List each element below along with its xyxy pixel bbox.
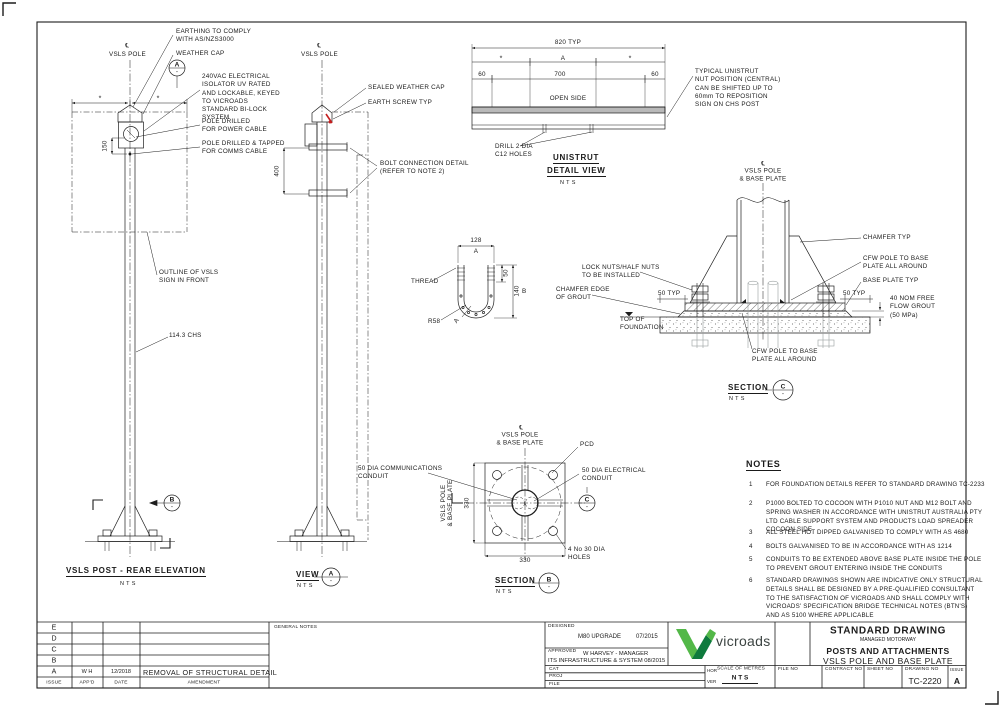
secb-centerline-symbol: ℄ bbox=[519, 425, 523, 432]
dim-150: 150 bbox=[102, 140, 109, 151]
designed-value: M80 UPGRADE bbox=[578, 634, 621, 640]
note-3-number: 3 bbox=[749, 529, 753, 538]
dim-140: 140 bbox=[514, 285, 521, 296]
rear-dim-star-right: * bbox=[157, 96, 160, 103]
note-4-number: 4 bbox=[749, 543, 753, 552]
scale-value: N T S bbox=[732, 675, 749, 682]
lock-nuts-label: LOCK NUTS/HALF NUTS TO BE INSTALLED bbox=[582, 264, 660, 281]
issue-a-date: 12/2018 bbox=[111, 669, 131, 675]
dim-400: 400 bbox=[274, 165, 281, 176]
issue-value: A bbox=[954, 676, 960, 686]
issue-row-c: C bbox=[51, 646, 56, 653]
marker-b-letter: B bbox=[170, 496, 175, 503]
secb-view-c-letter: C bbox=[585, 496, 590, 503]
secb-view-c-dash: - bbox=[586, 504, 588, 511]
sheet-title: VSLS POLE AND BASE PLATE bbox=[823, 656, 953, 666]
rear-centerline-symbol: ℄ bbox=[125, 43, 129, 50]
unistrut-nut-label: TYPICAL UNISTRUT NUT POSITION (CENTRAL) … bbox=[695, 68, 781, 109]
ubolt-ref-a-top: A bbox=[474, 248, 478, 256]
approved-label: APPROVED bbox=[548, 649, 576, 654]
ubolt-detail-drawing bbox=[432, 246, 517, 320]
drawing-no-label: DRAWING NO bbox=[905, 667, 939, 672]
thread-label: THREAD bbox=[411, 278, 438, 286]
note-6-text: STANDARD DRAWINGS SHOWN ARE INDICATIVE O… bbox=[766, 577, 983, 621]
sheet-no-label: SHEET NO bbox=[867, 667, 893, 672]
issue-row-d: D bbox=[51, 635, 56, 642]
section-c-marker-dash: - bbox=[782, 391, 784, 398]
base-plate-label: BASE PLATE TYP bbox=[863, 277, 918, 285]
secc-centerline-symbol: ℄ bbox=[761, 161, 765, 168]
unistrut-title-2: DETAIL VIEW bbox=[547, 166, 606, 177]
view-a-nts: NTS bbox=[297, 583, 315, 589]
note-5-text: CONDUITS TO BE EXTENDED ABOVE BASE PLATE… bbox=[766, 556, 981, 574]
dim-50typ-right: 50 TYP bbox=[843, 290, 865, 298]
unistrut-title-1: UNISTRUT bbox=[553, 153, 599, 164]
designed-label: DESIGNED bbox=[548, 624, 575, 629]
view-a-title: VIEW bbox=[296, 570, 319, 581]
note-4-text: BOLTS GALVANISED TO BE IN ACCORDANCE WIT… bbox=[766, 543, 952, 552]
drawing-no-value: TC-2220 bbox=[908, 676, 941, 686]
bolt-connection-label: BOLT CONNECTION DETAIL (REFER TO NOTE 2) bbox=[380, 160, 469, 177]
scale-label: SCALE OF METRES bbox=[717, 667, 765, 672]
chamfer-label: CHAMFER TYP bbox=[863, 234, 911, 242]
ver-label: VER bbox=[707, 679, 716, 684]
power-cable-label: POLE DRILLED FOR POWER CABLE bbox=[202, 118, 267, 135]
isolator-label: 240VAC ELECTRICAL ISOLATOR UV RATED AND … bbox=[202, 73, 280, 123]
detail-a-marker-dash: - bbox=[176, 69, 178, 76]
rear-elevation-drawing bbox=[72, 35, 200, 557]
dim-128: 128 bbox=[470, 237, 481, 245]
section-c-drawing bbox=[592, 183, 884, 400]
designed-date: 07/2015 bbox=[636, 634, 658, 640]
issue-label: ISSUE bbox=[950, 667, 964, 672]
secb-pole-label-rotated: VSLS POLE & BASE PLATE bbox=[440, 480, 454, 527]
sealed-cap-label: SEALED WEATHER CAP bbox=[368, 84, 445, 92]
chs-label: 114.3 CHS bbox=[169, 332, 202, 340]
grout-label: 40 NOM FREE FLOW GROUT (50 MPa) bbox=[890, 295, 935, 320]
uni-star-right: * bbox=[629, 56, 632, 63]
earthing-label: EARTHING TO COMPLY WITH AS/NZS3000 bbox=[176, 28, 251, 45]
uni-star-left: * bbox=[500, 56, 503, 63]
standard-drawing-title: STANDARD DRAWING bbox=[830, 626, 946, 637]
rear-pole-centerline-label: VSLS POLE bbox=[109, 51, 146, 59]
general-notes-label: GENERAL NOTES bbox=[274, 625, 317, 630]
issue-a-amendment: REMOVAL OF STRUCTURAL DETAIL bbox=[143, 668, 277, 677]
sign-outline-label: OUTLINE OF VSLS SIGN IN FRONT bbox=[159, 269, 218, 286]
comms-cable-label: POLE DRILLED & TAPPED FOR COMMS CABLE bbox=[202, 140, 285, 157]
header-amendment: AMENDMENT bbox=[188, 680, 221, 685]
holes-label: 4 No 30 DIA HOLES bbox=[568, 546, 605, 563]
viewa-pole-centerline-label: VSLS POLE bbox=[301, 51, 338, 59]
cat-label: CAT bbox=[549, 667, 559, 672]
issue-a-appd: W H bbox=[82, 669, 93, 675]
pcd-label: PCD bbox=[580, 441, 594, 449]
open-side-label: OPEN SIDE bbox=[550, 95, 587, 103]
earth-screw-label: EARTH SCREW TYP bbox=[368, 99, 432, 107]
viewa-centerline-symbol: ℄ bbox=[317, 43, 321, 50]
issue-row-a: A bbox=[52, 668, 57, 675]
dim-330-left: 330 bbox=[464, 497, 471, 508]
view-a-drawing bbox=[277, 60, 377, 586]
electrical-conduit-label: 50 DIA ELECTRICAL CONDUIT bbox=[582, 467, 646, 484]
rear-elevation-nts: NTS bbox=[120, 581, 138, 587]
section-b-nts: NTS bbox=[496, 589, 514, 595]
drill-holes-label: DRILL 2 DIA C12 HOLES bbox=[495, 143, 533, 160]
section-c-marker-letter: C bbox=[781, 383, 786, 390]
view-a-marker-letter: A bbox=[329, 570, 334, 577]
marker-b-dash: - bbox=[171, 504, 173, 511]
rear-dim-star-left: * bbox=[99, 96, 102, 103]
rear-elevation-title: VSLS POST - REAR ELEVATION bbox=[66, 566, 206, 577]
note-1-number: 1 bbox=[749, 481, 753, 490]
section-b-title: SECTION bbox=[495, 576, 535, 587]
note-5-number: 5 bbox=[749, 556, 753, 565]
header-date: DATE bbox=[114, 680, 127, 685]
uni-zone-a: A bbox=[561, 55, 565, 63]
section-c-nts: NTS bbox=[729, 396, 747, 402]
cfw-bottom-label: CFW POLE TO BASE PLATE ALL AROUND bbox=[752, 348, 818, 365]
dim-700: 700 bbox=[554, 71, 565, 79]
dim-60-left: 60 bbox=[478, 71, 486, 79]
contract-no-label: CONTRACT NO bbox=[825, 667, 862, 672]
unistrut-nts: NTS bbox=[560, 180, 578, 186]
section-b-marker-dash: - bbox=[548, 584, 550, 591]
note-2-number: 2 bbox=[749, 500, 753, 509]
dim-50: 50 bbox=[503, 269, 510, 277]
ubolt-ref-b: B bbox=[522, 288, 526, 296]
detail-a-marker-letter: A bbox=[175, 61, 180, 68]
dim-820: 820 TYP bbox=[555, 39, 581, 47]
secc-pole-label: VSLS POLE & BASE PLATE bbox=[740, 168, 787, 185]
dim-50typ-left: 50 TYP bbox=[658, 290, 680, 298]
note-3-text: ALL STEEL HOT DIPPED GALVANISED TO COMPL… bbox=[766, 529, 968, 538]
view-a-marker-dash: - bbox=[330, 578, 332, 585]
notes-title: NOTES bbox=[746, 459, 781, 471]
issue-row-e: E bbox=[52, 624, 57, 631]
header-issue: ISSUE bbox=[46, 680, 61, 685]
file-label: FILE bbox=[549, 682, 560, 687]
proj-label: PROJ bbox=[549, 674, 563, 679]
hor-label: HOR bbox=[707, 668, 717, 673]
vicroads-logo-icon bbox=[676, 629, 716, 659]
dim-60-right: 60 bbox=[651, 71, 659, 79]
secb-pole-label-top: VSLS POLE & BASE PLATE bbox=[497, 432, 544, 449]
issue-row-b: B bbox=[52, 657, 57, 664]
note-1-text: FOR FOUNDATION DETAILS REFER TO STANDARD… bbox=[766, 481, 985, 490]
header-appd: APP'D bbox=[80, 680, 95, 685]
vicroads-wordmark: vicroads bbox=[716, 633, 771, 649]
note-6-number: 6 bbox=[749, 577, 753, 586]
section-c-title: SECTION bbox=[728, 383, 768, 394]
approved-value: W HARVEY - MANAGER bbox=[583, 651, 648, 657]
series-title: POSTS AND ATTACHMENTS bbox=[826, 646, 949, 656]
top-foundation-label: TOP OF FOUNDATION bbox=[620, 316, 664, 333]
chamfer-edge-label: CHAMFER EDGE OF GROUT bbox=[556, 286, 610, 303]
cfw-top-label: CFW POLE TO BASE PLATE ALL AROUND bbox=[863, 255, 929, 272]
file-no-label: FILE NO bbox=[778, 667, 798, 672]
section-b-marker-letter: B bbox=[547, 576, 552, 583]
dim-330-bottom: 330 bbox=[519, 557, 530, 565]
drawing-sheet: ℄ VSLS POLE * * EARTHING TO COMPLY WITH … bbox=[0, 0, 1000, 707]
approved-line2: ITS INFRASTRUCTURE & SYSTEM 08/2015 bbox=[548, 658, 665, 664]
managed-motorway-subtitle: MANAGED MOTORWAY bbox=[860, 637, 916, 643]
comms-conduit-label: 50 DIA COMMUNICATIONS CONDUIT bbox=[358, 465, 442, 482]
weather-cap-label: WEATHER CAP bbox=[176, 50, 224, 58]
r58-label: R58 bbox=[428, 318, 440, 326]
